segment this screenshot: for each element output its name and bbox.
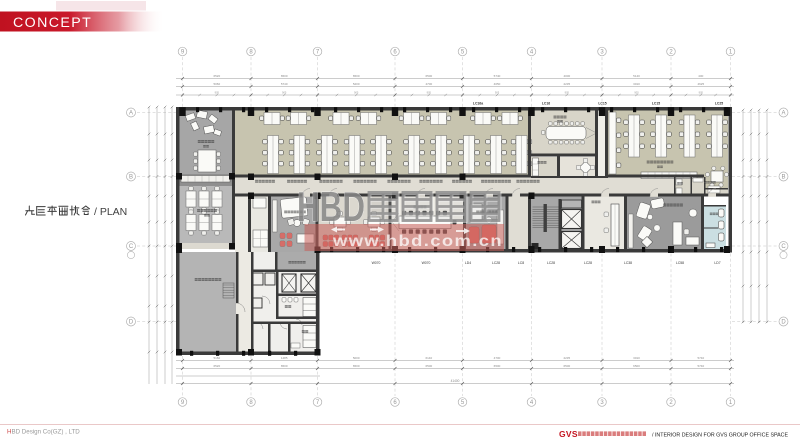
svg-text:D: D	[781, 320, 786, 326]
svg-text:LC25: LC25	[715, 102, 723, 106]
svg-text:6140: 6140	[425, 356, 432, 360]
svg-text:905: 905	[495, 91, 500, 95]
svg-text:5740: 5740	[281, 82, 288, 86]
svg-text:6500: 6500	[281, 364, 288, 368]
svg-text:41400: 41400	[451, 379, 460, 383]
svg-text:6500: 6500	[281, 74, 288, 78]
svg-text:GVS: GVS	[559, 429, 578, 439]
svg-text:6500: 6500	[563, 364, 570, 368]
svg-text:5140: 5140	[633, 74, 640, 78]
svg-text:5200: 5200	[353, 82, 360, 86]
svg-text:5740: 5740	[494, 74, 501, 78]
svg-text:905: 905	[634, 91, 639, 95]
svg-text:LC38: LC38	[624, 261, 632, 265]
svg-text:/ PLAN: / PLAN	[94, 206, 127, 218]
svg-text:4700: 4700	[425, 82, 432, 86]
svg-text:5000: 5000	[353, 356, 360, 360]
svg-text:3010: 3010	[633, 82, 640, 86]
svg-text:6500: 6500	[425, 364, 432, 368]
svg-text:6500: 6500	[353, 74, 360, 78]
svg-text:HBD Design Co(GZ) , LTD: HBD Design Co(GZ) , LTD	[7, 429, 80, 436]
svg-text:3010: 3010	[633, 356, 640, 360]
svg-text:B: B	[129, 175, 133, 181]
svg-text:905: 905	[565, 91, 570, 95]
svg-text:LC58: LC58	[676, 261, 684, 265]
svg-text:1485: 1485	[281, 356, 288, 360]
svg-text:LD7: LD7	[714, 261, 720, 265]
svg-text:4700: 4700	[494, 356, 501, 360]
svg-text:905: 905	[427, 91, 432, 95]
svg-text:6500: 6500	[633, 364, 640, 368]
svg-text:LC28: LC28	[584, 261, 592, 265]
svg-text:4000: 4000	[563, 74, 570, 78]
svg-text:LC8: LC8	[518, 261, 524, 265]
svg-text:6500: 6500	[425, 74, 432, 78]
svg-text:www.hbd.com.cn: www.hbd.com.cn	[332, 233, 503, 250]
svg-text:905: 905	[354, 91, 359, 95]
svg-text:LC16a: LC16a	[473, 102, 483, 106]
svg-text:6500: 6500	[494, 364, 501, 368]
svg-text:/ INTERIOR DESIGN FOR GVS GROU: / INTERIOR DESIGN FOR GVS GROUP OFFICE S…	[652, 433, 788, 439]
svg-text:6520: 6520	[213, 364, 220, 368]
svg-text:W070: W070	[422, 261, 431, 265]
svg-text:6520: 6520	[213, 74, 220, 78]
svg-text:A: A	[129, 111, 133, 117]
svg-text:W070: W070	[372, 261, 381, 265]
svg-text:LC16: LC16	[542, 102, 550, 106]
svg-text:LD4: LD4	[465, 261, 471, 265]
svg-text:D: D	[129, 320, 134, 326]
svg-text:5740: 5740	[697, 356, 704, 360]
svg-text:C: C	[781, 244, 786, 250]
svg-text:5740: 5740	[697, 364, 704, 368]
svg-text:2235: 2235	[563, 82, 570, 86]
svg-text:B: B	[781, 175, 785, 181]
svg-text:6500: 6500	[353, 364, 360, 368]
svg-text:905: 905	[699, 91, 704, 95]
svg-text:5160: 5160	[213, 356, 220, 360]
svg-text:4625: 4625	[697, 82, 704, 86]
svg-text:400: 400	[698, 74, 703, 78]
svg-text:HBD: HBD	[297, 183, 365, 230]
svg-text:CONCEPT: CONCEPT	[13, 15, 92, 31]
svg-text:LC15: LC15	[598, 102, 606, 106]
svg-text:905: 905	[215, 91, 220, 95]
svg-text:5060: 5060	[213, 82, 220, 86]
svg-text:4050: 4050	[494, 82, 501, 86]
svg-text:LC28: LC28	[492, 261, 500, 265]
svg-text:LC28: LC28	[547, 261, 555, 265]
svg-text:A: A	[781, 111, 785, 117]
svg-text:C: C	[129, 244, 134, 250]
svg-text:905: 905	[282, 91, 287, 95]
svg-text:LC15: LC15	[652, 102, 660, 106]
svg-text:2235: 2235	[563, 356, 570, 360]
